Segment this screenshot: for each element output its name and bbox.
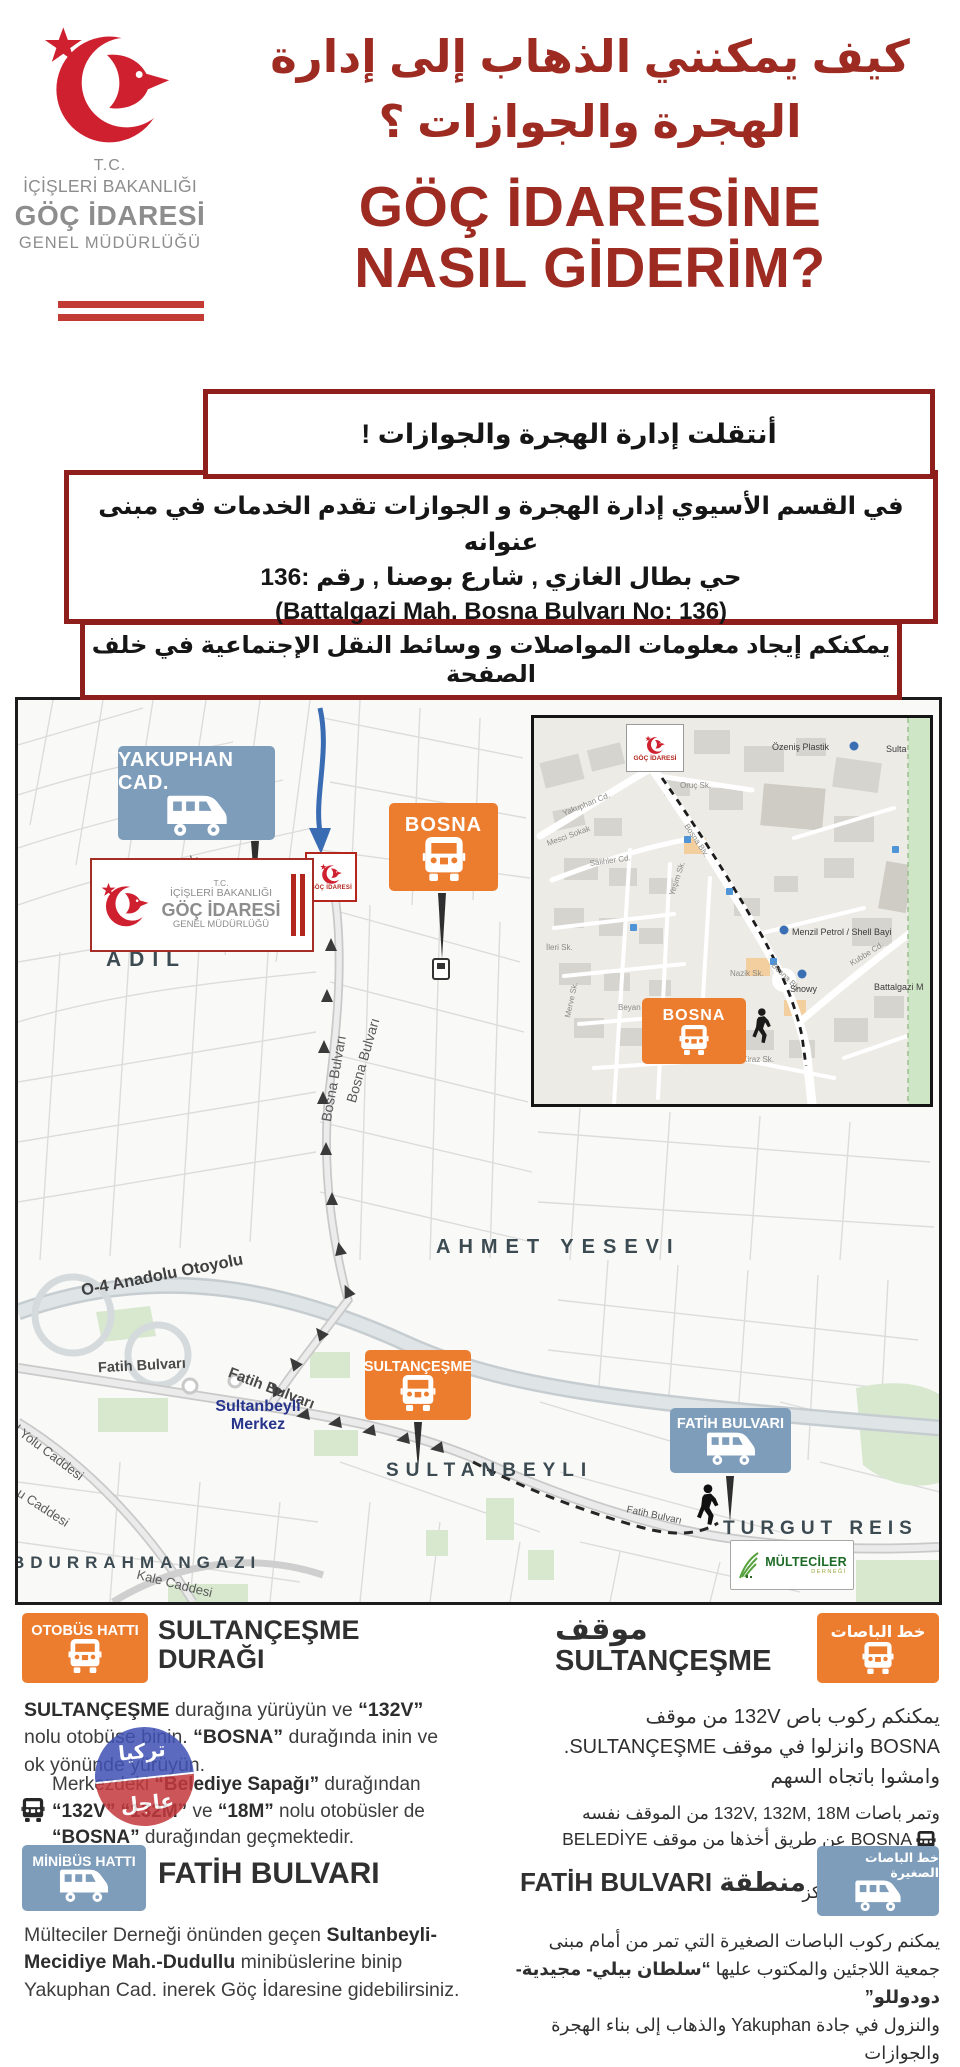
inset-goc-label: GÖÇ İDARESİ — [634, 755, 677, 762]
map-logo-text: T.C. İÇİŞLERİ BAKANLIĞI GÖÇ İDARESİ GENE… — [155, 879, 287, 931]
heading-fatih-bulvari-ar: منطقة FATİH BULVARI — [520, 1868, 808, 1896]
area-label-ahmet-yesevi: AHMET YESEVI — [436, 1236, 681, 1259]
inset-label-nazik: Nazik Sk. — [730, 969, 764, 978]
brand-tc: T.C. — [12, 156, 208, 176]
minibus-icon — [704, 1432, 758, 1466]
inset-detail-map: Yakuphan Cd. Oruç Sk. Bosna Blv. Bosna B… — [531, 715, 933, 1107]
inset-bosna-badge: BOSNA — [642, 998, 746, 1064]
stop-badge-fatih-label: FATİH BULVARI — [677, 1416, 784, 1432]
rp2-line1: وتمر باصات 132V, 132M, 18M من الموقف نفس… — [500, 1800, 940, 1826]
area-label-sultanbeyli: SULTANBEYLI — [386, 1460, 593, 1482]
brand-sub: GENEL MÜDÜRLÜĞÜ — [12, 233, 208, 254]
p2-text-5: durağından geçmektedir. — [140, 1827, 354, 1848]
inset-bosna-label: BOSNA — [663, 1007, 726, 1025]
map-logo-sub: GENEL MÜDÜRLÜĞÜ — [155, 920, 287, 931]
paragraph-bus-line-tr: SULTANÇEŞME durağına yürüyün ve “132V” n… — [24, 1697, 456, 1779]
stop-badge-yakuphan: YAKUPHAN CAD. — [118, 746, 275, 840]
label-sultanbeyli-merkez: Sultanbeyli Merkez — [196, 1398, 320, 1435]
minibus-line-badge-tr-label: MİNİBÜS HATTI — [32, 1853, 135, 1869]
inset-poi-ozenis: Özeniş Plastik — [772, 742, 830, 752]
p1-bold-2: “132V” — [358, 1699, 423, 1721]
map-logo-bars — [291, 874, 305, 936]
p1-bold-1: SULTANÇEŞME — [24, 1699, 170, 1721]
map-logo-org: GÖÇ İDARESİ — [155, 900, 287, 920]
paragraph-bus-line-ar: يمكنكم ركوب باص 132V من موقف BOSNA وانزل… — [500, 1702, 940, 1792]
inset-goc-marker: GÖÇ İDARESİ — [626, 724, 684, 772]
heading-sultancesme-ar: SULTANÇEŞME — [555, 1646, 807, 1677]
title-arabic-line1: كيف يمكنني الذهاب إلى إدارة — [235, 24, 945, 89]
bus-icon — [400, 1375, 436, 1411]
inset-green-strip — [908, 718, 930, 1104]
bus-icon — [422, 837, 466, 881]
brand-logo: T.C. İÇİŞLERİ BAKANLIĞI GÖÇ İDARESİ GENE… — [12, 156, 208, 254]
inset-label-oruc: Oruç Sk. — [680, 781, 711, 790]
p2-text-2: durağından — [319, 1774, 420, 1795]
p2-text-4: nolu otobüsler de — [274, 1801, 425, 1822]
rp1-line2: BOSNA وانزلوا في موقف SULTANÇEŞME‎. — [500, 1732, 940, 1762]
bus-line-badge-ar: خط الباصات — [817, 1613, 939, 1683]
rp3-line2: جمعية اللاجئين والمكتوب عليها “سلطان بيل… — [480, 1956, 940, 2012]
rp1-line3: وامشوا باتجاه السهم — [500, 1762, 940, 1792]
title-turkish-line1: GÖÇ İDARESİNE — [235, 177, 945, 239]
minibus-line-badge-tr: MİNİBÜS HATTI — [22, 1845, 146, 1911]
title-arabic-line2: الهجرة والجوازات ؟ — [235, 89, 945, 154]
label-merkez-line2: Merkez — [196, 1416, 320, 1434]
label-merkez-line1: Sultanbeyli — [196, 1398, 320, 1416]
stop-badge-bosna: BOSNA — [389, 803, 498, 891]
notice-box-moved: أنتقلت إدارة الهجرة والجوازات ! — [203, 389, 935, 479]
notice-box-address: في القسم الأسيوي إدارة الهجرة و الجوازات… — [64, 470, 938, 624]
inset-poi-snowy: Snowy — [790, 984, 818, 994]
inset-label-kiraz: Kiraz Sk. — [742, 1055, 774, 1064]
inset-poi-sultan: Sulta — [886, 744, 907, 754]
brand-org: GÖÇ İDARESİ — [12, 198, 208, 233]
big-blue-arrow-icon — [309, 708, 331, 854]
crescent-icon — [319, 863, 343, 885]
brand-bars — [58, 301, 204, 327]
bus-icon — [68, 1639, 102, 1673]
bus-stop-sign-icon — [433, 959, 449, 979]
bus-line-badge-tr: OTOBÜS HATTI — [22, 1613, 148, 1683]
notice-box-backpage: يمكنكم إيجاد معلومات المواصلات و وسائط ا… — [80, 620, 902, 700]
paragraph-minibus-ar: يمكنم ركوب الباصات الصغيرة التي تمر من أ… — [480, 1928, 940, 2067]
bus-line-badge-tr-label: OTOBÜS HATTI — [31, 1623, 138, 1639]
rp3-line1: يمكنم ركوب الباصات الصغيرة التي تمر من أ… — [480, 1928, 940, 1956]
crescent-icon — [99, 880, 151, 930]
heading-sultancesme-duragi: SULTANÇEŞME DURAĞI — [158, 1616, 360, 1674]
stop-badge-bosna-label: BOSNA — [405, 814, 482, 837]
heading-fatih-bulvari-tr: FATİH BULVARI — [158, 1858, 380, 1890]
map-logo-ministry: İÇİŞLERİ BAKANLIĞI — [155, 888, 287, 900]
stop-badge-sultancesme: SULTANÇEŞME — [365, 1350, 471, 1420]
minibus-icon — [164, 795, 230, 837]
heading-duragi: DURAĞI — [158, 1645, 360, 1674]
heading-mawqif: موقف — [555, 1614, 807, 1646]
multeciler-bird-icon — [737, 1550, 761, 1580]
p1-text-1: durağına yürüyün ve — [170, 1699, 359, 1721]
bus-line-badge-ar-label: خط الباصات — [831, 1622, 926, 1642]
bus-icon — [679, 1025, 709, 1055]
multeciler-dernegi-logo: MÜLTECİLER DERNEĞİ — [730, 1540, 854, 1590]
title-turkish-line2: NASIL GİDERİM? — [235, 238, 945, 300]
page-title: كيف يمكنني الذهاب إلى إدارة الهجرة والجو… — [235, 24, 945, 300]
map-logo-box: T.C. İÇİŞLERİ BAKANLIĞI GÖÇ İDARESİ GENE… — [90, 858, 314, 952]
inset-poi-battalgazi: Battalgazi M — [874, 982, 924, 992]
brand-ministry: İÇİŞLERİ BAKANLIĞI — [12, 176, 208, 198]
crescent-icon — [644, 735, 666, 755]
stop-badge-fatih-bulvari: FATİH BULVARI — [670, 1408, 791, 1473]
goc-marker-label: GÖÇ İDARESİ — [310, 885, 352, 891]
address-line-turkish: (Battalgazi Mah. Bosna Bulvarı No: 136) — [69, 596, 933, 628]
multeciler-sub: DERNEĞİ — [765, 1569, 847, 1575]
heading-sultancesme: SULTANÇEŞME — [158, 1616, 360, 1645]
area-label-turgut-reis: TURGUT REIS — [723, 1518, 918, 1540]
p3-text-1: Mülteciler Derneği önünden geçen — [24, 1924, 326, 1946]
p2-text-3: ve — [187, 1801, 218, 1822]
multeciler-name: MÜLTECİLER — [765, 1555, 847, 1569]
rp3-line3: والنزول في جادة Yakuphan والذهاب إلى بنا… — [480, 2012, 940, 2067]
multeciler-text: MÜLTECİLER DERNEĞİ — [765, 1555, 847, 1575]
heading-mawqif-sultancesme: موقف SULTANÇEŞME — [555, 1614, 807, 1678]
rp3-line2-text: جمعية اللاجئين والمكتوب عليها — [711, 1959, 940, 1979]
brand-emblem-icon — [38, 22, 176, 150]
p2-bold-3: “18M” — [218, 1801, 274, 1822]
inset-label-ileri: İleri Sk. — [546, 943, 573, 952]
walking-person-icon — [694, 1484, 720, 1526]
rp1-line1: يمكنكم ركوب باص 132V من موقف — [500, 1702, 940, 1732]
address-line-arabic-2: حي بطال الغازي , شارع بوصنا , رقم :136 — [69, 560, 933, 596]
route-map: YAKUPHAN CAD. BOSNA SULTANÇEŞME FATİH BU… — [15, 697, 942, 1605]
inset-walking-person-icon — [750, 1008, 772, 1044]
stop-badge-sultancesme-label: SULTANÇEŞME — [364, 1359, 472, 1375]
paragraph-minibus-tr: Mülteciler Derneği önünden geçen Sultanb… — [24, 1922, 482, 2004]
minibus-icon — [851, 1880, 905, 1912]
minibus-line-badge-ar-label: خط الباصات الصغيرة — [817, 1850, 939, 1880]
bus-icon — [862, 1642, 894, 1674]
stop-badge-yakuphan-label: YAKUPHAN CAD. — [118, 749, 275, 795]
minibus-icon — [55, 1869, 113, 1903]
p1-bold-3: “BOSNA” — [193, 1726, 283, 1748]
address-line-arabic-1: في القسم الأسيوي إدارة الهجرة و الجوازات… — [69, 489, 933, 560]
inset-poi-menzil: Menzil Petrol / Shell Bayi — [792, 927, 892, 937]
minibus-line-badge-ar: خط الباصات الصغيرة — [817, 1846, 939, 1916]
small-bus-icon-left — [20, 1798, 46, 1822]
